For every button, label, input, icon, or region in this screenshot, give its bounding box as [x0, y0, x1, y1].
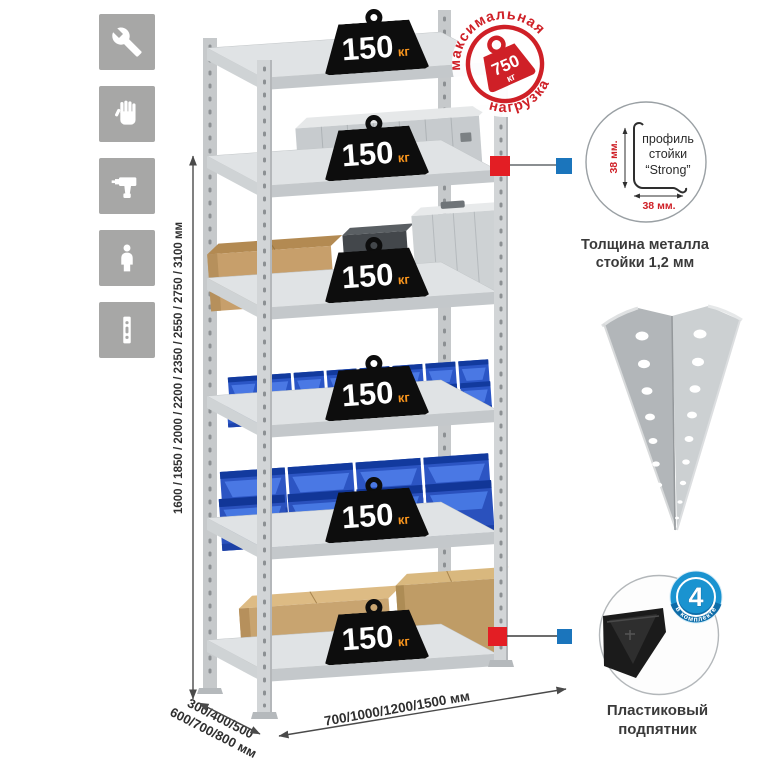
profile-caption: Толщина металла стойки 1,2 мм: [570, 236, 720, 272]
shelf-load-unit: кг: [397, 43, 410, 59]
quantity-badge: в комплекте 4: [666, 567, 726, 627]
gloves-icon: [111, 98, 143, 130]
shelf-load-unit: кг: [397, 271, 410, 287]
profile-text-line2: стойки: [649, 147, 687, 161]
foot-caption-line2: подпятник: [575, 721, 740, 740]
shelf-load-badge-2: 150кг: [321, 111, 429, 181]
foot-marker-red: [488, 627, 507, 646]
post-feature-tile: [99, 302, 155, 358]
shelf-load-value: 150: [341, 136, 395, 171]
shelf-load-badge-6: 150кг: [321, 595, 429, 665]
drill-feature-tile: [99, 158, 155, 214]
profile-caption-line1: Толщина металла: [570, 236, 720, 254]
shelf-load-badge-1: 150кг: [321, 5, 429, 75]
badge-value: 4: [688, 582, 703, 612]
foot-caption: Пластиковый подпятник: [575, 702, 740, 740]
height-dimension-label: 1600 / 1850 / 2000 / 2200 / 2350 / 2550 …: [173, 203, 185, 533]
drill-icon: [111, 170, 143, 202]
wrench-icon: [111, 26, 143, 58]
corner-post-illustration: [588, 292, 758, 537]
rack-post-icon: [111, 314, 143, 346]
profile-caption-line2: стойки 1,2 мм: [570, 254, 720, 272]
max-load-stamp: максимальная нагрузка 750 кг: [435, 0, 575, 134]
shelf-load-badge-3: 150кг: [321, 233, 429, 303]
gloves-feature-tile: [99, 86, 155, 142]
shelf-load-value: 150: [341, 620, 395, 655]
profile-dim-vertical: 38 мм.: [608, 140, 620, 173]
foot-caption-line1: Пластиковый: [575, 702, 740, 721]
foot-marker-blue: [557, 629, 572, 644]
post-profile-detail: 38 мм. 38 мм. профиль стойки “Strong”: [583, 99, 709, 225]
assembly-feature-tile: [99, 14, 155, 70]
profile-dim-horizontal: 38 мм.: [642, 200, 675, 212]
shelf-load-badge-4: 150кг: [321, 351, 429, 421]
person-feature-tile: [99, 230, 155, 286]
shelf-load-value: 150: [341, 376, 395, 411]
shelf-load-badge-5: 150кг: [321, 473, 429, 543]
shelf-load-value: 150: [341, 258, 395, 293]
person-icon: [111, 242, 143, 274]
profile-text-line3: “Strong”: [645, 163, 690, 177]
profile-marker-blue: [556, 158, 572, 174]
shelf-load-unit: кг: [397, 149, 410, 165]
profile-marker-red: [490, 156, 510, 176]
shelf-load-value: 150: [341, 498, 395, 533]
shelf-load-unit: кг: [397, 633, 410, 649]
shelf-load-value: 150: [341, 30, 395, 65]
profile-text-line1: профиль: [642, 132, 694, 146]
shelf-load-unit: кг: [397, 511, 410, 527]
shelf-load-unit: кг: [397, 389, 410, 405]
product-infographic: 1600 / 1850 / 2000 / 2200 / 2350 / 2550 …: [0, 0, 765, 765]
